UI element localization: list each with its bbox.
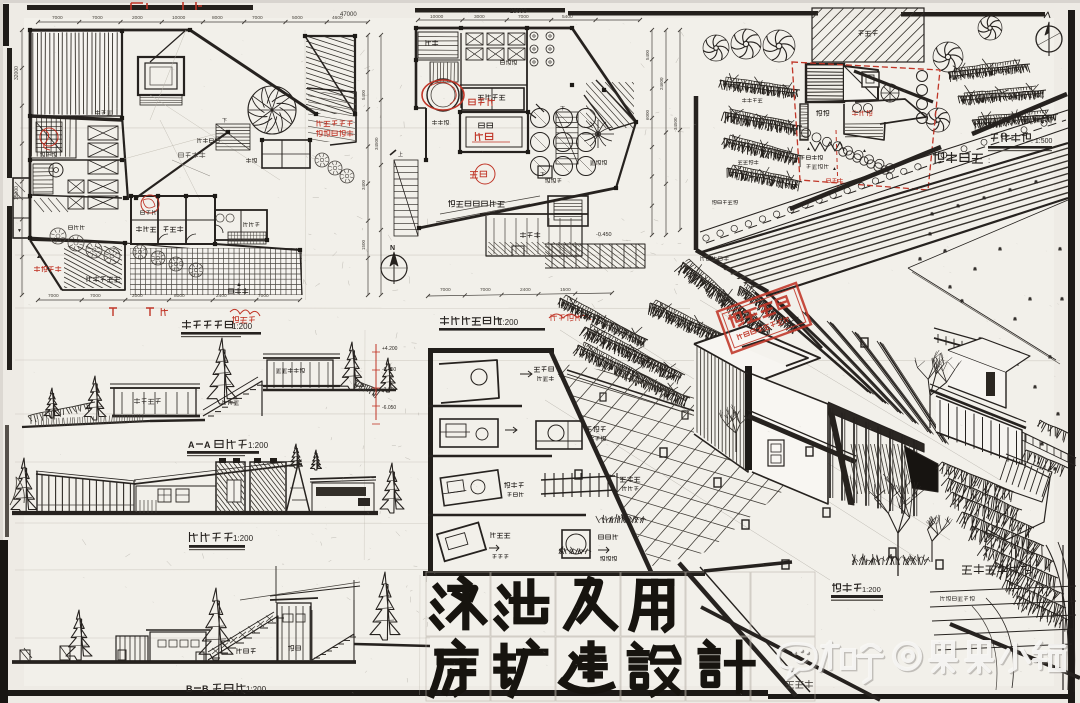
svg-text::: : [988, 156, 990, 165]
svg-text:8000: 8000 [212, 15, 223, 21]
svg-text:1:200: 1:200 [232, 322, 253, 331]
svg-text:10000: 10000 [172, 15, 186, 21]
svg-text:▲: ▲ [36, 254, 41, 260]
svg-text:上: 上 [398, 151, 403, 158]
svg-text:B: B [186, 684, 193, 694]
svg-text:5000: 5000 [292, 15, 303, 21]
svg-text:+4.200: +4.200 [382, 346, 398, 352]
svg-text:▼: ▼ [17, 228, 22, 234]
svg-text:5400: 5400 [562, 14, 573, 20]
svg-text:7000: 7000 [252, 15, 263, 21]
svg-text:32000: 32000 [14, 66, 20, 80]
svg-text:7000: 7000 [258, 293, 269, 299]
svg-text:2000: 2000 [132, 293, 143, 299]
svg-text:A: A [188, 440, 195, 450]
svg-text:34500: 34500 [374, 137, 379, 150]
svg-text:7000: 7000 [518, 14, 529, 20]
svg-text:47000: 47000 [340, 12, 357, 18]
svg-text:7000: 7000 [48, 293, 59, 299]
svg-text:1:200: 1:200 [248, 441, 269, 450]
svg-text:7000: 7000 [480, 287, 491, 293]
svg-text:34500: 34500 [673, 117, 678, 130]
svg-text:7000: 7000 [92, 15, 103, 21]
svg-text:下: 下 [560, 106, 565, 112]
svg-text:: 1:500: : 1:500 [1031, 138, 1053, 145]
svg-text:15000: 15000 [14, 186, 20, 200]
svg-text::: : [1040, 567, 1042, 576]
svg-text:2400: 2400 [520, 287, 531, 293]
svg-text:1:200: 1:200 [862, 585, 881, 594]
svg-text:2000: 2000 [132, 15, 143, 21]
svg-text:8000: 8000 [174, 293, 185, 299]
svg-text:A: A [204, 440, 211, 450]
svg-text:1500: 1500 [560, 287, 571, 293]
svg-text:1:200: 1:200 [246, 685, 267, 694]
svg-text:3000: 3000 [474, 14, 485, 20]
svg-text:7000: 7000 [52, 15, 63, 21]
svg-text:▲: ▲ [236, 282, 242, 288]
svg-text:5400: 5400 [645, 49, 650, 60]
svg-text:下: 下 [222, 118, 227, 124]
svg-text:7000: 7000 [90, 293, 101, 299]
svg-text:-3.600: -3.600 [382, 387, 396, 393]
svg-text:2400: 2400 [216, 293, 227, 299]
svg-text:6000: 6000 [645, 109, 650, 120]
svg-text:下: 下 [540, 172, 545, 178]
svg-text:1:200: 1:200 [233, 534, 254, 543]
svg-text:N: N [390, 245, 395, 252]
svg-text:B: B [202, 684, 209, 694]
svg-text:7000: 7000 [440, 287, 451, 293]
svg-text:▲: ▲ [806, 146, 811, 152]
svg-text:-6.050: -6.050 [382, 405, 396, 411]
svg-text:1:200: 1:200 [498, 318, 519, 327]
svg-text:▲: ▲ [832, 166, 837, 172]
svg-text:-0.450: -0.450 [596, 232, 612, 238]
svg-text:-0.450: -0.450 [382, 367, 396, 373]
svg-text:1500: 1500 [361, 239, 366, 250]
svg-text:3400: 3400 [361, 179, 366, 190]
svg-text:10000: 10000 [430, 14, 444, 20]
